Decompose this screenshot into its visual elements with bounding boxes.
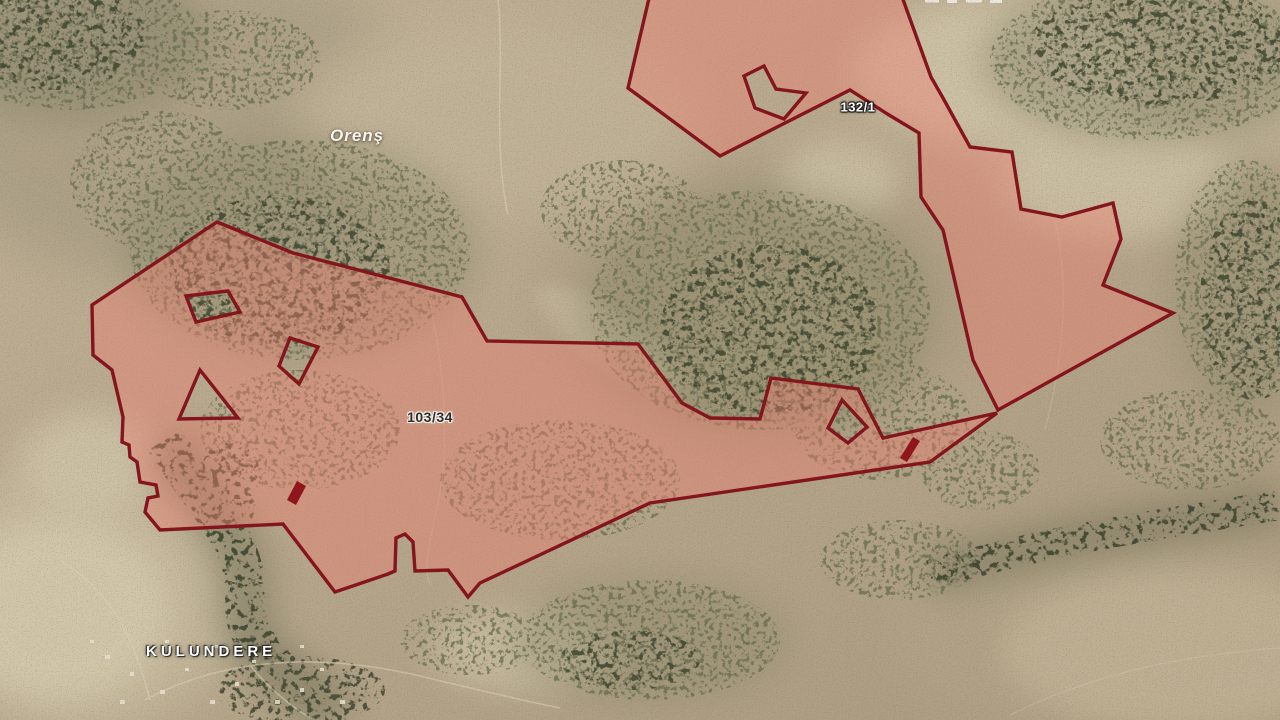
- parcel-132-1[interactable]: [628, 0, 1173, 410]
- parcel-overlay-layer: [0, 0, 1280, 720]
- map-canvas[interactable]: Orenş KULUNDERE 132/1 103/34: [0, 0, 1280, 720]
- parcel-103-34[interactable]: [92, 222, 997, 597]
